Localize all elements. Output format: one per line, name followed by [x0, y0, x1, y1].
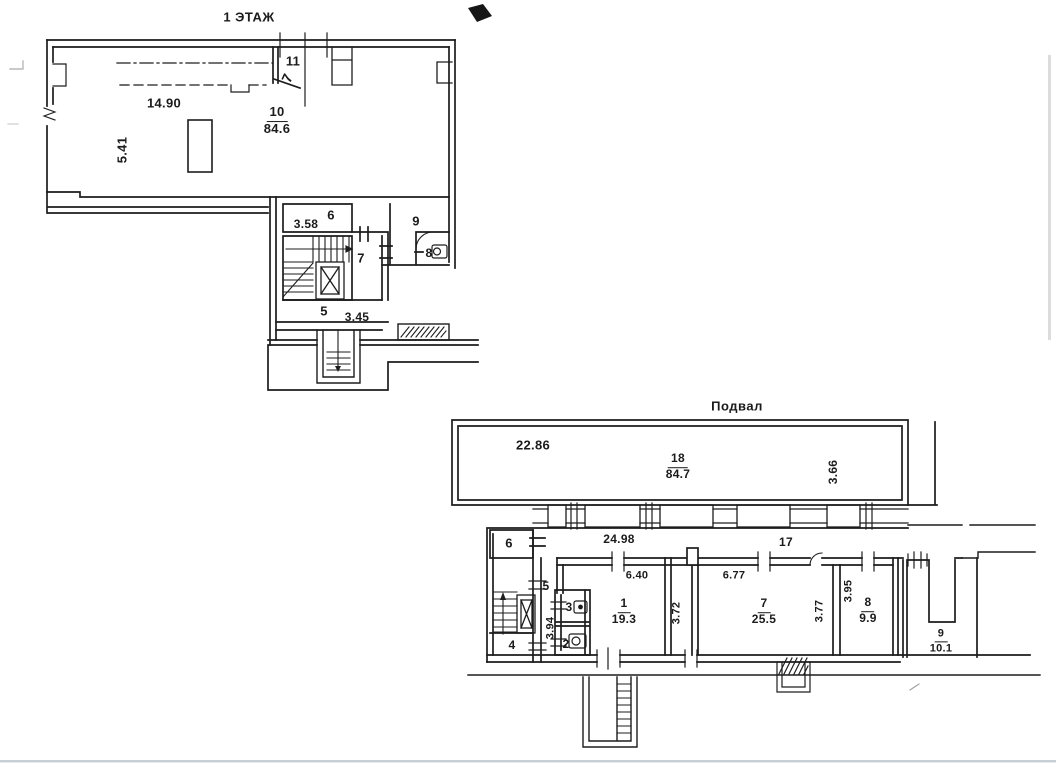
- ff-room-8-label: 8: [426, 247, 433, 259]
- sink-icon-room2: [569, 634, 586, 648]
- bm-room-9-area: 10.1: [930, 642, 953, 655]
- bm-room-6-label: 6: [505, 537, 513, 550]
- bm-dim-3-77: 3.77: [815, 600, 826, 623]
- ff-room-11-label: 11: [286, 55, 300, 68]
- ff-room-10-label: 10 84.6: [264, 105, 291, 137]
- pier-row: [533, 503, 908, 529]
- bm-room-1-area: 19.3: [612, 613, 637, 627]
- bm-corridor-17-label: 17: [779, 536, 793, 548]
- bm-dim-6-40: 6.40: [626, 571, 649, 582]
- basement-elevator-icon: [517, 595, 535, 633]
- first-floor-walls: [44, 33, 478, 390]
- bm-dim-24-98: 24.98: [603, 533, 635, 545]
- ff-dim-5-41: 5.41: [116, 137, 129, 164]
- bm-dim-3-95: 3.95: [844, 580, 855, 603]
- bm-room-9-label: 9 10.1: [930, 627, 953, 654]
- bm-room-1-label: 1 19.3: [612, 597, 637, 627]
- bm-room-8-number: 8: [862, 596, 875, 612]
- bm-room-7-area: 25.5: [752, 613, 777, 627]
- bm-room-4-label: 4: [509, 639, 516, 651]
- bm-dim-3-72: 3.72: [672, 602, 683, 625]
- basement-stairs-icon: [493, 592, 517, 634]
- ff-dim-3-58: 3.58: [294, 218, 319, 230]
- ramp-hatch: [398, 324, 449, 340]
- pillar: [188, 120, 212, 172]
- ff-dim-3-45: 3.45: [345, 311, 370, 323]
- bm-dim-22-86: 22.86: [516, 439, 550, 452]
- bm-room-18-area: 84.7: [666, 468, 691, 482]
- elevator-icon: [316, 262, 344, 299]
- bm-room-1-number: 1: [618, 597, 631, 613]
- bm-room-9-number: 9: [935, 627, 947, 642]
- bm-dim-6-77: 6.77: [723, 571, 746, 582]
- section-lines: [280, 33, 327, 106]
- plan-drawing: [0, 0, 1056, 768]
- bm-room-2-label: 2: [563, 638, 570, 650]
- bm-room-7-label: 7 25.5: [752, 597, 777, 627]
- basement-plan: [452, 420, 1040, 747]
- bm-room-18-label: 18 84.7: [666, 452, 691, 482]
- mezzanine-dashed-line: [117, 63, 273, 92]
- ff-room-10-area: 84.6: [264, 122, 291, 137]
- entrance-stairs-icon: [317, 330, 360, 383]
- bm-dim-3-66: 3.66: [827, 460, 839, 485]
- bm-room-18-number: 18: [668, 452, 688, 468]
- toilet-icon: [432, 245, 447, 258]
- first-floor-title: 1 ЭТАЖ: [223, 11, 274, 24]
- ff-room-6-label: 6: [327, 209, 335, 222]
- bm-room-3-label: 3: [566, 601, 573, 613]
- ff-room-9-label: 9: [412, 215, 420, 228]
- exterior-stairs-icon: [583, 677, 637, 747]
- bm-room-8-label: 8 9.9: [859, 596, 877, 626]
- ff-room-10-number: 10: [266, 105, 287, 122]
- floor-plan-scan: 1 ЭТАЖ 7 11 14.90 10 84.6 5.41 3.58 6 9 …: [0, 0, 1056, 768]
- bm-room-8-area: 9.9: [859, 612, 877, 626]
- ff-dim-14-90: 14.90: [147, 97, 181, 110]
- bm-room-5-label: 5: [543, 580, 550, 592]
- bm-dim-3-94: 3.94: [546, 617, 557, 640]
- basement-title: Подвал: [711, 400, 763, 413]
- ff-room-7-label: 7: [357, 252, 365, 265]
- bm-room-7-number: 7: [758, 597, 771, 613]
- first-floor-plan: [44, 33, 478, 390]
- stairs-icon: [283, 236, 352, 297]
- ff-room-5-label: 5: [320, 305, 328, 318]
